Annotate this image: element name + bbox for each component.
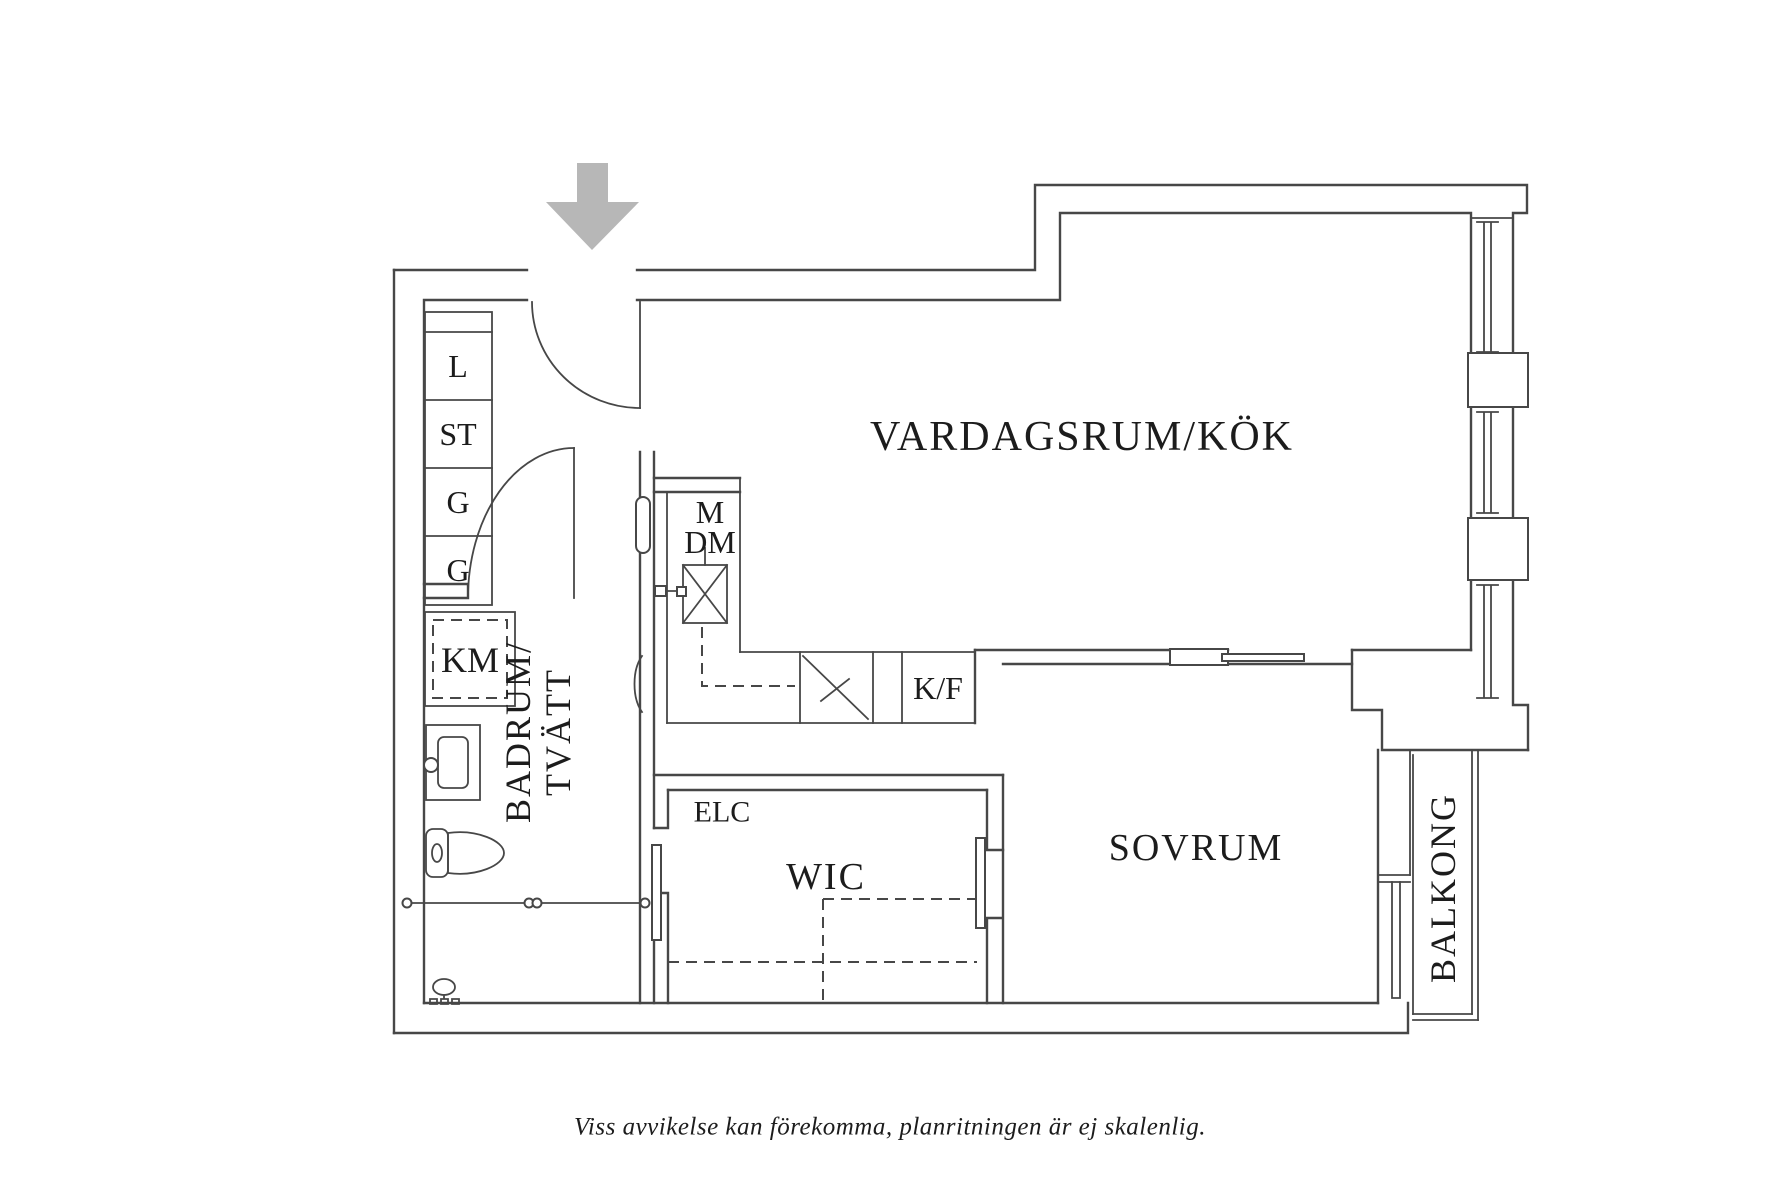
entry-arrow-icon: [546, 163, 639, 250]
closet-label-st: ST: [439, 416, 477, 452]
fridge-freezer-label: K/F: [913, 670, 963, 706]
bedroom-north-wall: [975, 649, 1352, 665]
bathroom-sink: [424, 725, 480, 800]
entry-door: [532, 302, 640, 408]
wardrobe-dashed-lines: [668, 899, 977, 1003]
bathroom-label-line2: TVÄTT: [538, 668, 578, 796]
sliding-door-living-bedroom-leaf: [1222, 654, 1304, 661]
door-jamb-plate: [636, 497, 650, 553]
floor-drain-icon: [430, 979, 459, 1004]
balcony-door: [1378, 750, 1410, 998]
floor-plan-svg: L ST G G KM: [0, 0, 1780, 1187]
electrical-label: ELC: [694, 796, 751, 829]
sliding-door-bathroom-wic: [652, 845, 661, 940]
sliding-door-living-bedroom-panel: [1170, 649, 1228, 665]
outer-walls: [394, 185, 1528, 1033]
east-windows: [1468, 218, 1528, 698]
closet-label-g2: G: [446, 552, 469, 588]
wic-label: WIC: [786, 856, 866, 898]
hall-closets: L ST G G: [425, 312, 492, 605]
shower-screen: [403, 899, 650, 908]
floor-plan-page: L ST G G KM: [0, 0, 1780, 1187]
dishwasher-label: DM: [684, 524, 736, 560]
window-pier-2: [1468, 518, 1528, 580]
bathroom-label-line1: BADRUM/: [498, 641, 538, 823]
bathroom-door: [468, 448, 574, 598]
living-kitchen-label: VARDAGSRUM/KÖK: [870, 414, 1294, 460]
closet-label-g1: G: [446, 484, 469, 520]
disclaimer-text: Viss avvikelse kan förekomma, planritnin…: [574, 1114, 1206, 1141]
closet-label-l: L: [448, 348, 468, 384]
bedroom-label: SOVRUM: [1109, 827, 1284, 869]
sliding-door-wic-bedroom: [976, 838, 985, 928]
window-pier-1: [1468, 353, 1528, 407]
toilet: [426, 829, 504, 877]
stove-icon: [803, 656, 868, 719]
washing-machine-label: KM: [441, 640, 499, 680]
balcony-label: BALKONG: [1423, 793, 1463, 983]
